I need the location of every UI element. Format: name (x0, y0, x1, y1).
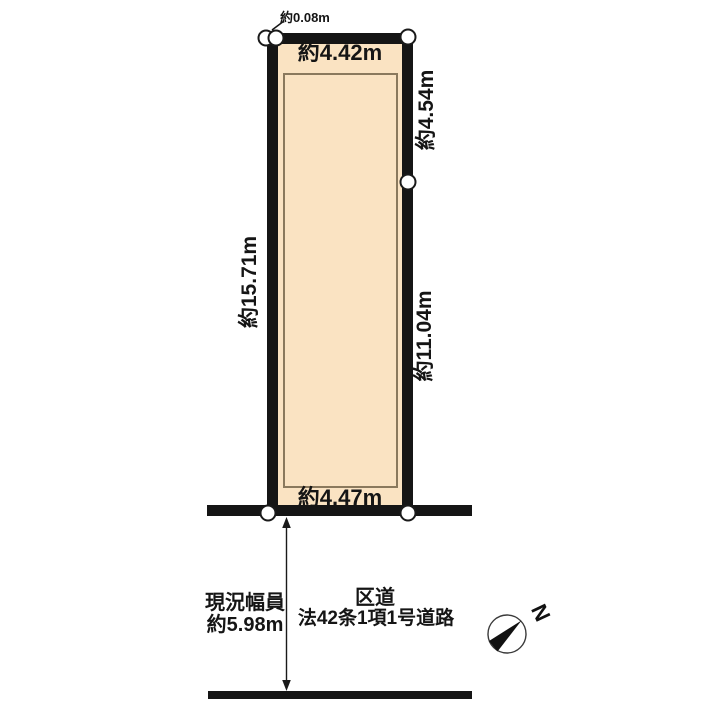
vertex-marker (401, 506, 416, 521)
dimension-arrowhead-down-icon (282, 680, 291, 691)
vertex-marker (269, 31, 284, 46)
diagram-overlay: N (0, 0, 720, 720)
dimension-arrowhead-up-icon (282, 517, 291, 528)
offset-tick-line (272, 21, 284, 30)
north-compass-icon: N (488, 600, 555, 653)
vertex-markers (259, 30, 416, 521)
vertex-marker (401, 175, 416, 190)
land-plot-diagram: 約0.08m 約4.42m 約15.71m 約4.54m 約11.04m 約4.… (0, 0, 720, 720)
road-width-dimension-arrow (282, 517, 291, 691)
vertex-marker (261, 506, 276, 521)
vertex-marker (401, 30, 416, 45)
compass-north-label: N (526, 600, 555, 625)
